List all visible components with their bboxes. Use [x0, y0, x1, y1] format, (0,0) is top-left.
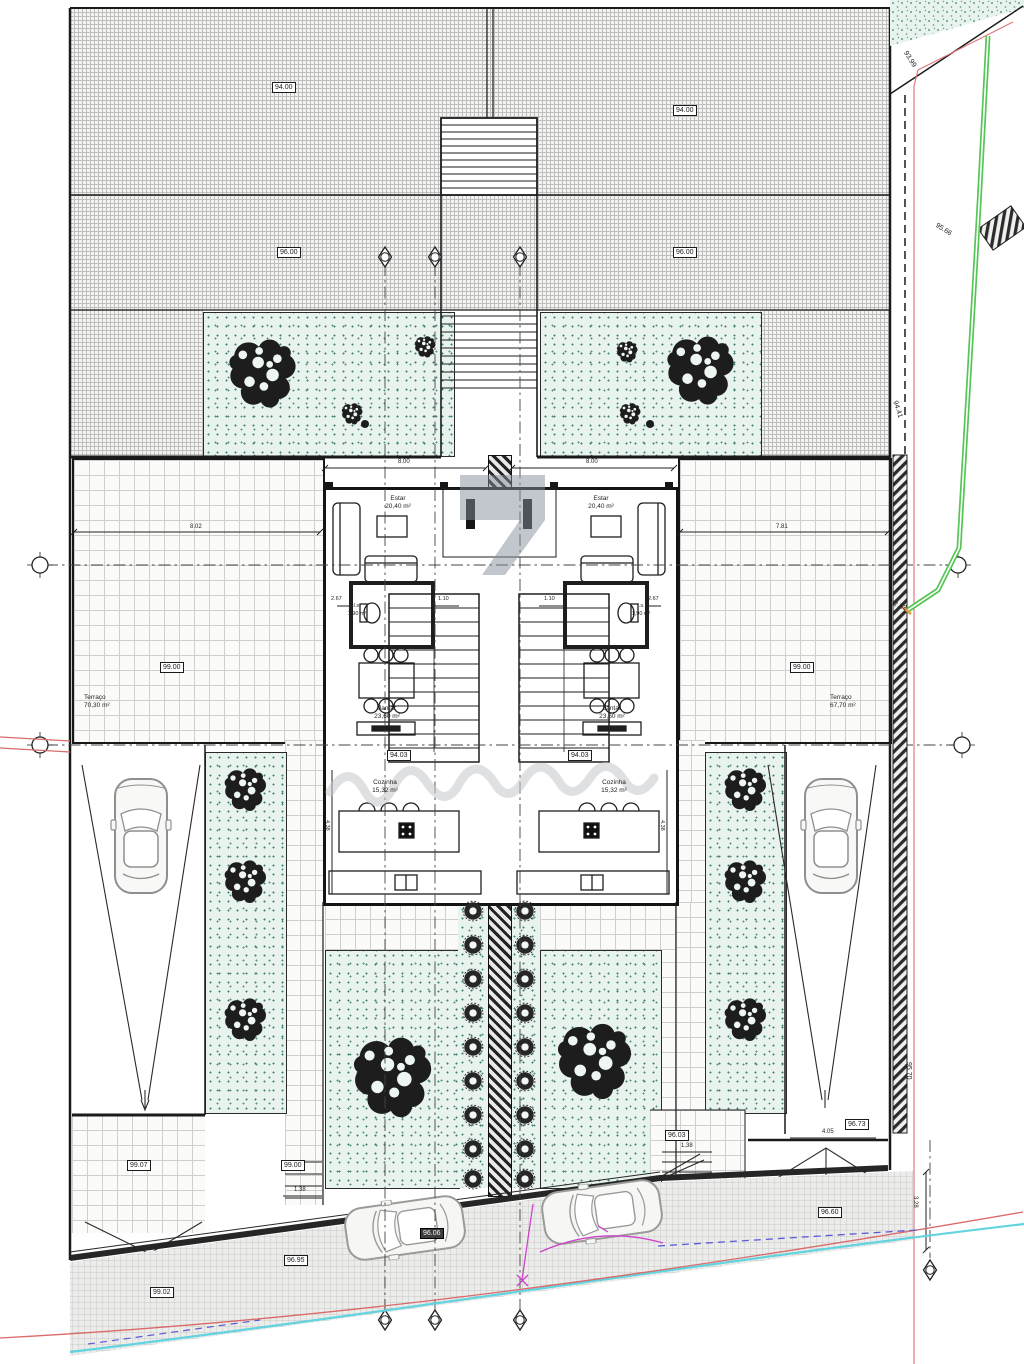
dim-terrace-left: 8.02 [190, 524, 202, 530]
dim-stair-right: 1.38 [681, 1143, 693, 1149]
room-estar-left: Estar 20,40 m² [368, 495, 428, 510]
room-jantar-left: Jantar 23,60 m² [357, 705, 417, 720]
trees [225, 336, 766, 1117]
right-boundary-wall [893, 455, 907, 1133]
boundary-lines [0, 0, 1024, 1364]
car-right-drive [801, 779, 861, 893]
room-name: Estar [368, 495, 428, 503]
central-stairs [441, 8, 537, 457]
dim-wc-gap-right: 1.10 [544, 596, 555, 602]
level-walk-left: 99.00 [281, 1160, 305, 1171]
dim-unit-width-right: 8.00 [586, 459, 598, 465]
dim-unit-width-left: 8.00 [398, 459, 410, 465]
room-terraco-right: Terraço 67,70 m² [830, 694, 886, 709]
room-cozinha-left: Cozinha 15,32 m² [355, 779, 415, 794]
level-roof-right: 94.00 [673, 105, 697, 116]
car-left-drive [111, 779, 171, 893]
level-roof-left: 94.00 [272, 82, 296, 93]
level-drive-left: 99.07 [127, 1160, 151, 1171]
level-floor-right: 94.03 [568, 750, 592, 761]
room-terraco-left: Terraço 70,30 m² [70, 694, 140, 709]
plan-linework [0, 0, 1024, 1364]
level-street-mid: 96.06 [420, 1228, 444, 1239]
room-estar-right: Estar 20,40 m² [571, 495, 631, 510]
level-terrace-right: 99.00 [790, 662, 814, 673]
dim-wc-left: 2.67 [331, 596, 342, 602]
dim-ramp-right: 4.05 [822, 1129, 834, 1135]
corner-vegetation [890, 0, 1024, 46]
site-plan-drawing: 94.00 94.00 96.00 96.00 99.00 99.00 94.0… [0, 0, 1024, 1364]
kitchen-left [329, 803, 481, 894]
boundary-level-5: 95.70 [905, 1062, 912, 1080]
stair-left-unit [389, 594, 479, 762]
level-drive-right: 96.73 [845, 1119, 869, 1130]
green-utility-line [908, 36, 988, 610]
kitchen-right [517, 803, 669, 894]
level-floor-left: 94.03 [387, 750, 411, 761]
level-terrace-left: 99.00 [160, 662, 184, 673]
dim-terrace-right: 7.81 [776, 524, 788, 530]
level-upper-right: 96.00 [673, 247, 697, 258]
level-walk-low: 99.02 [150, 1287, 174, 1298]
room-wc-right: I.s. 1,90 m² [616, 603, 666, 618]
sofa-right-unit [581, 503, 665, 582]
room-jantar-right: Jantar 23,60 m² [582, 705, 642, 720]
level-upper-left: 96.00 [277, 247, 301, 258]
level-entry-right: 96.03 [665, 1130, 689, 1141]
level-walk-mid: 96.95 [284, 1255, 308, 1266]
sofa-left-unit [333, 503, 417, 582]
shrub-rows [463, 901, 535, 1189]
room-area: 20,40 m² [368, 503, 428, 511]
dim-wc-right: 2.67 [648, 596, 659, 602]
dim-stair-left: 1.38 [294, 1187, 306, 1193]
unit-interiors [325, 482, 673, 894]
dim-wc-gap-left: 1.10 [438, 596, 449, 602]
room-wc-left: I.s. 1,90 m² [332, 603, 382, 618]
room-cozinha-right: Cozinha 15,32 m² [584, 779, 644, 794]
dimension-lines [71, 465, 929, 1253]
dim-kitchen-left: 4.38 [324, 820, 330, 831]
dim-side-vert: 3.28 [912, 1196, 918, 1208]
level-street-right: 96.60 [818, 1207, 842, 1218]
stair-right-unit [519, 594, 609, 762]
dim-kitchen-right: 4.38 [659, 820, 665, 831]
